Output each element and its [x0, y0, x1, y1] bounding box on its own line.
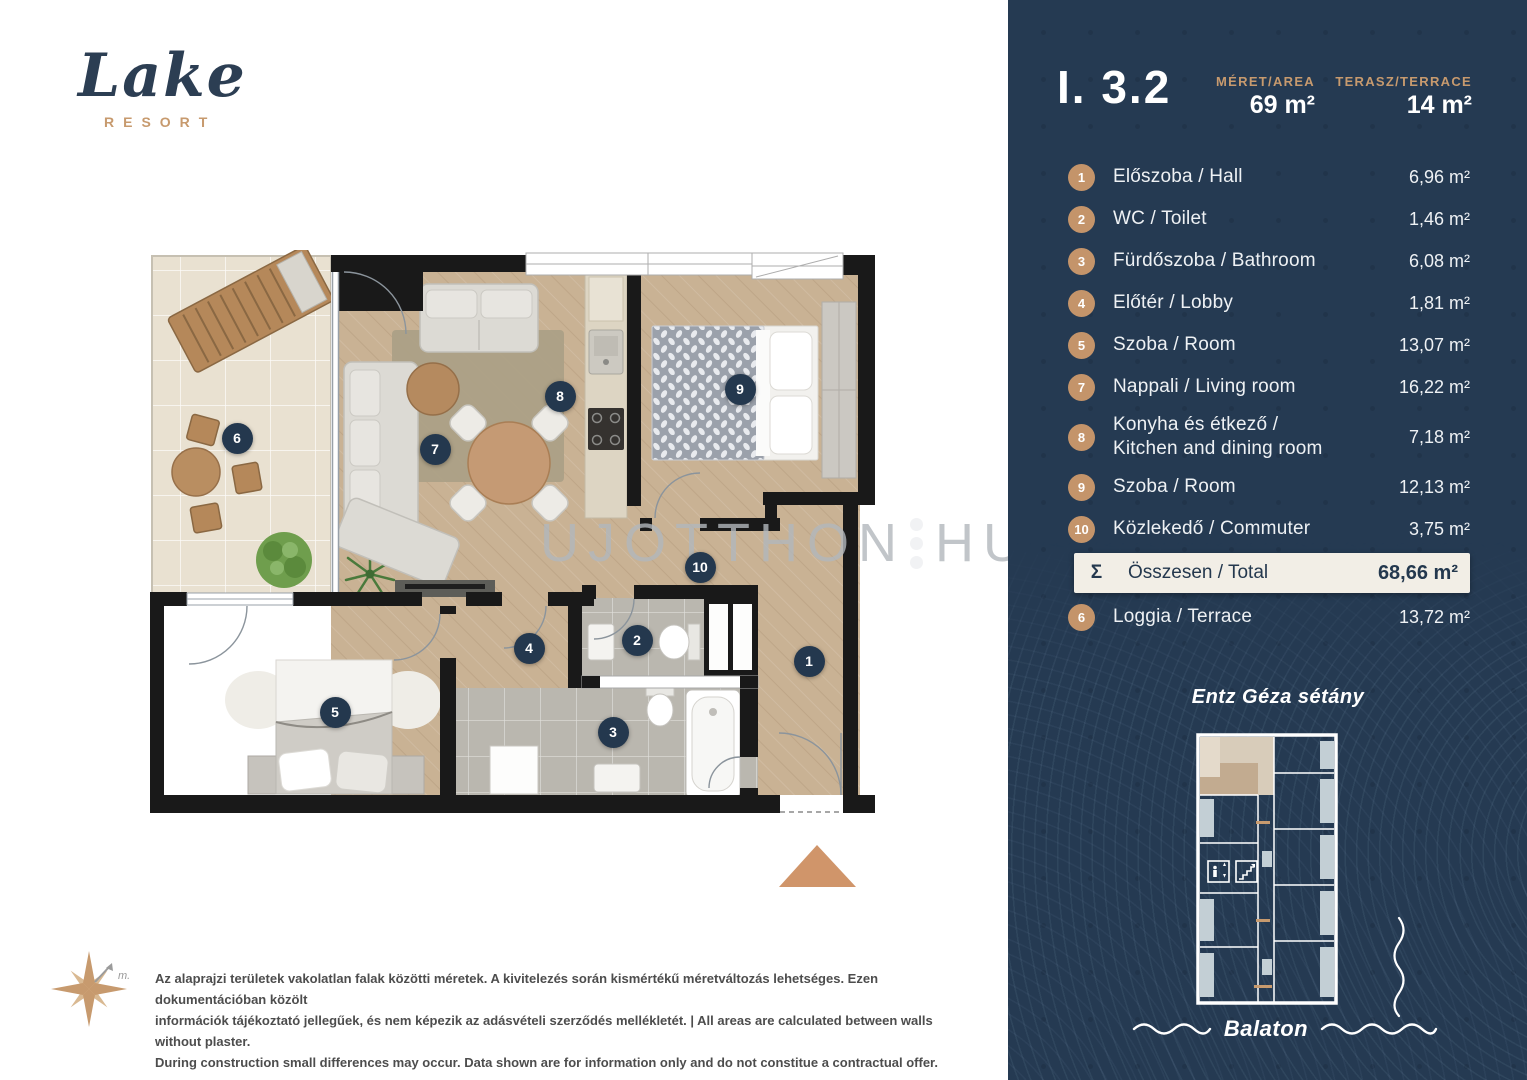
- room-area-value: 1,81 m²: [1409, 293, 1470, 314]
- room-marker-10: 10: [685, 552, 716, 583]
- sofa-two-seat: [420, 284, 538, 352]
- total-area-value: 68,66 m²: [1378, 562, 1458, 585]
- area-value: 69 m²: [1216, 91, 1315, 120]
- floor-plan: UJOTTHON HU 12345678910: [148, 250, 878, 895]
- lake-resort-logo: Lake RESORT: [78, 46, 318, 130]
- entrance-arrow-icon: [779, 845, 856, 887]
- loggia-label: Loggia / Terrace: [1113, 605, 1399, 629]
- kitchen-counter: [585, 272, 627, 518]
- room-marker-9: 9: [725, 374, 756, 405]
- loggia-row: 6 Loggia / Terrace 13,72 m²: [1068, 596, 1470, 638]
- room-row: 7Nappali / Living room16,22 m²: [1068, 366, 1470, 408]
- room-marker-3: 3: [598, 717, 629, 748]
- elevator-icon: [1208, 861, 1229, 882]
- logo-subtitle: RESORT: [104, 114, 318, 130]
- room-area-value: 13,07 m²: [1399, 335, 1470, 356]
- room-marker-5: 5: [320, 697, 351, 728]
- bush-plant: [256, 532, 312, 588]
- room-area-value: 12,13 m²: [1399, 477, 1470, 498]
- total-label: Összesen / Total: [1128, 562, 1378, 584]
- room-number-badge: 8: [1068, 424, 1095, 451]
- room-label: Konyha és étkező /Kitchen and dining roo…: [1113, 413, 1409, 461]
- room-list: 1Előszoba / Hall6,96 m²2WC / Toilet1,46 …: [1068, 156, 1470, 638]
- room-label: Fürdőszoba / Bathroom: [1113, 249, 1409, 273]
- room-marker-2: 2: [622, 625, 653, 656]
- room-area-value: 16,22 m²: [1399, 377, 1470, 398]
- room-label: WC / Toilet: [1113, 207, 1409, 231]
- room-label: Közlekedő / Commuter: [1113, 517, 1409, 541]
- total-row: Σ Összesen / Total 68,66 m²: [1074, 553, 1470, 593]
- room-number-badge: 4: [1068, 290, 1095, 317]
- sigma-icon: Σ: [1083, 562, 1110, 584]
- compass-mark-label: m.: [118, 970, 130, 982]
- floor-plan-drawing: [148, 250, 878, 895]
- room-number-badge: 10: [1068, 516, 1095, 543]
- disclaimer-line: During construction small differences ma…: [155, 1052, 965, 1073]
- balaton-row: Balaton: [1120, 1016, 1450, 1042]
- room-area-value: 6,08 m²: [1409, 251, 1470, 272]
- room-area-value: 7,18 m²: [1409, 427, 1470, 448]
- wave-line-icon: [1320, 1021, 1438, 1037]
- terrace-column: TERASZ/TERRACE 14 m²: [1335, 74, 1472, 120]
- area-column: MÉRET/AREA 69 m²: [1216, 74, 1315, 120]
- room-row: 4Előtér / Lobby1,81 m²: [1068, 282, 1470, 324]
- wave-line-icon: [1132, 1021, 1212, 1037]
- watermark-colon-dots: [910, 518, 923, 569]
- room-area-value: 6,96 m²: [1409, 167, 1470, 188]
- terrace-table: [172, 448, 220, 496]
- room-label: Nappali / Living room: [1113, 375, 1399, 399]
- disclaimer-text: Az alaprajzi területek vakolatlan falak …: [155, 968, 965, 1073]
- room-marker-1: 1: [794, 646, 825, 677]
- room-area-value: 3,75 m²: [1409, 519, 1470, 540]
- room-row: 3Fürdőszoba / Bathroom6,08 m²: [1068, 240, 1470, 282]
- area-label: MÉRET/AREA: [1216, 74, 1315, 89]
- logo-wordmark: Lake: [78, 46, 318, 106]
- room-marker-8: 8: [545, 381, 576, 412]
- compass-rose-icon: [50, 950, 128, 1033]
- bathroom-door: [582, 676, 758, 688]
- entrance-opening: [780, 795, 843, 813]
- coffee-table: [407, 363, 459, 415]
- duct-shaft: [709, 604, 728, 670]
- wardrobe: [822, 302, 856, 478]
- info-panel: I. 3.2 MÉRET/AREA 69 m² TERASZ/TERRACE 1…: [1008, 0, 1527, 1080]
- lake-name: Balaton: [1224, 1016, 1308, 1042]
- room-label: Szoba / Room: [1113, 475, 1399, 499]
- room-row: 5Szoba / Room13,07 m²: [1068, 324, 1470, 366]
- room-number-badge: 9: [1068, 474, 1095, 501]
- room-label: Előszoba / Hall: [1113, 165, 1409, 189]
- unit-id: I. 3.2: [1057, 60, 1171, 114]
- wave-squiggle-icon: [1390, 916, 1408, 1023]
- window: [526, 253, 843, 279]
- room-marker-7: 7: [420, 434, 451, 465]
- room-number-badge: 6: [1068, 604, 1095, 631]
- room-number-badge: 2: [1068, 206, 1095, 233]
- room-row: 1Előszoba / Hall6,96 m²: [1068, 156, 1470, 198]
- room-row: 9Szoba / Room12,13 m²: [1068, 466, 1470, 508]
- terrace-label: TERASZ/TERRACE: [1335, 74, 1472, 89]
- stairs-icon: [1236, 861, 1257, 882]
- room-label: Szoba / Room: [1113, 333, 1399, 357]
- disclaimer-line: információk tájékoztató jellegűek, és ne…: [155, 1010, 965, 1052]
- room-number-badge: 7: [1068, 374, 1095, 401]
- room-area-value: 1,46 m²: [1409, 209, 1470, 230]
- terrace-value: 14 m²: [1335, 91, 1472, 120]
- room-number-badge: 5: [1068, 332, 1095, 359]
- room-row: 10Közlekedő / Commuter3,75 m²: [1068, 508, 1470, 550]
- room-row: 2WC / Toilet1,46 m²: [1068, 198, 1470, 240]
- loggia-area-value: 13,72 m²: [1399, 607, 1470, 628]
- room-label: Előtér / Lobby: [1113, 291, 1409, 315]
- room-marker-6: 6: [222, 423, 253, 454]
- room-number-badge: 3: [1068, 248, 1095, 275]
- room-number-badge: 1: [1068, 164, 1095, 191]
- room-row: 8Konyha és étkező /Kitchen and dining ro…: [1068, 408, 1470, 466]
- street-name: Entz Géza sétány: [1048, 686, 1508, 709]
- building-minimap: [1196, 733, 1338, 1010]
- disclaimer-line: Az alaprajzi területek vakolatlan falak …: [155, 968, 965, 1010]
- room-marker-4: 4: [514, 633, 545, 664]
